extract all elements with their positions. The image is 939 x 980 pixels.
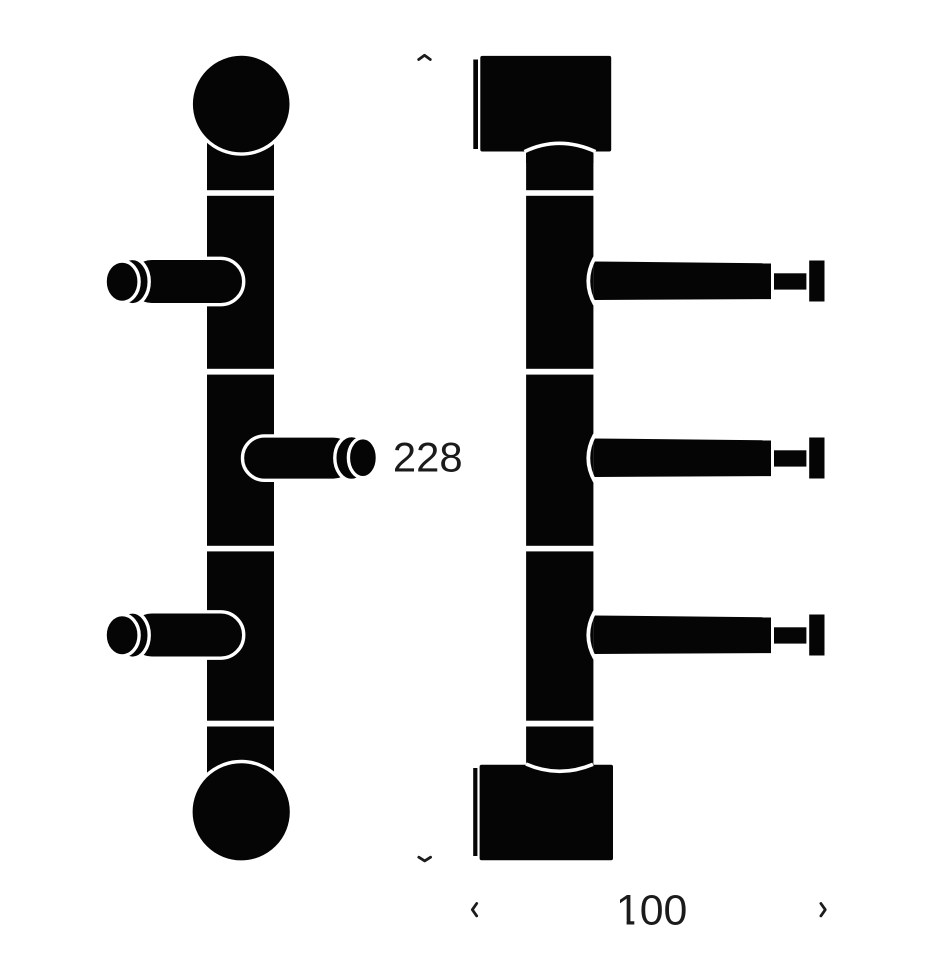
svg-text:100: 100: [616, 886, 687, 934]
svg-text:228: 228: [393, 433, 463, 480]
